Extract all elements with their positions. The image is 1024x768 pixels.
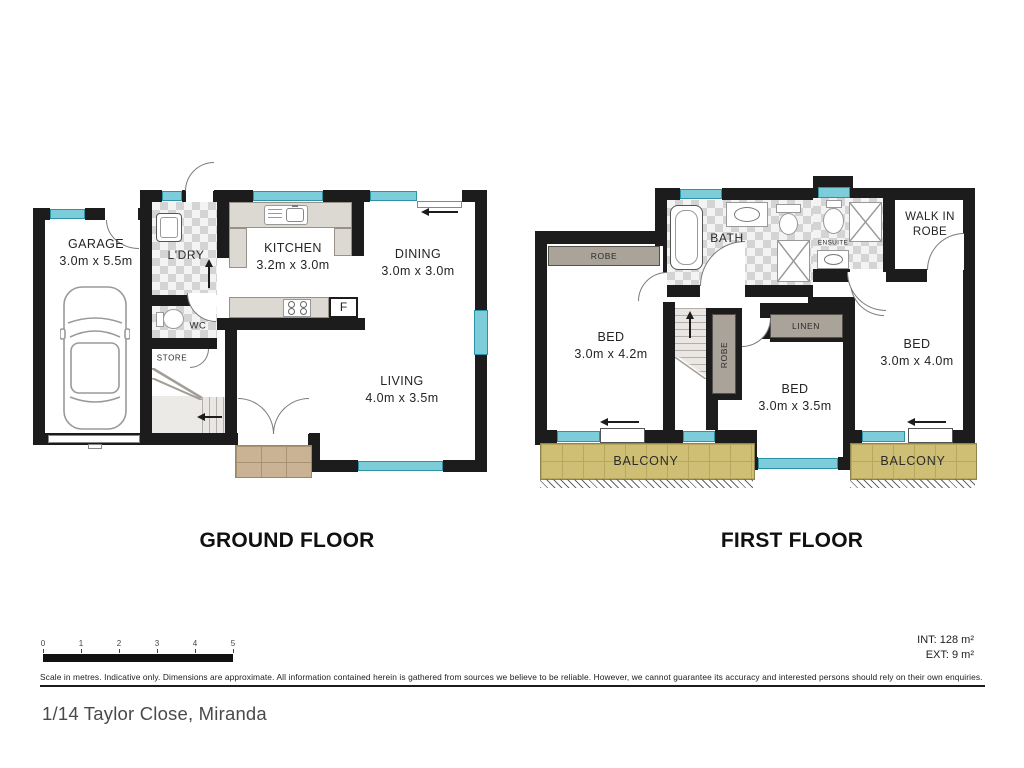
room-label-bed3: BED3.0m x 4.0m [880, 336, 953, 370]
scale-tick-label: 2 [117, 639, 121, 648]
stair-direction-line [204, 416, 222, 418]
room-label-bed1: BED3.0m x 4.2m [574, 329, 647, 363]
scale-tick-label: 3 [155, 639, 159, 648]
ensuite-basin-icon [817, 250, 849, 269]
label-linen: LINEN [792, 321, 820, 331]
room-label-walk-in-robe: WALK INROBE [905, 210, 955, 240]
store-door-arc [190, 349, 209, 368]
balcony-slider-door [600, 428, 645, 443]
slider-direction-line [914, 421, 946, 423]
window [253, 191, 323, 201]
ground-floor-title: GROUND FLOOR [199, 529, 374, 553]
label-balcony-left: BALCONY [613, 454, 678, 468]
stairs-up-arrow [686, 311, 694, 319]
divider-line [40, 685, 985, 687]
entry-direction-arrow [421, 208, 429, 216]
entry-direction-line [428, 211, 458, 213]
property-address: 1/14 Taylor Close, Miranda [42, 703, 267, 725]
bathtub-icon [670, 205, 703, 270]
bath-toilet-icon [776, 204, 801, 213]
scale-bar-rule [43, 654, 233, 662]
front-door-arc [185, 162, 214, 191]
room-label-bath: BATH [710, 231, 744, 245]
stairs-ground [202, 397, 225, 433]
porch-bricks [235, 445, 312, 478]
scale-tick-label: 1 [79, 639, 83, 648]
laundry-sink-icon [156, 213, 182, 242]
room-label-wc: WC [189, 321, 206, 332]
stairs-up-line [689, 318, 691, 338]
entry-step [417, 201, 462, 208]
scale-tick-label: 4 [193, 639, 197, 648]
bed1-door-arc [638, 272, 667, 301]
balcony-slider-door [908, 428, 953, 443]
bath-basin-counter [726, 202, 768, 227]
area-summary: INT: 128 m² EXT: 9 m² [917, 633, 974, 663]
first-floor-title: FIRST FLOOR [721, 529, 863, 553]
slider-direction-arrow [907, 418, 915, 426]
garage-door [48, 435, 140, 443]
slider-direction-arrow [600, 418, 608, 426]
room-label-kitchen: KITCHEN3.2m x 3.0m [256, 240, 329, 274]
window [358, 461, 443, 471]
scale-tick-label: 5 [231, 639, 235, 648]
label-robe-tall: ROBE [719, 342, 729, 369]
label-balcony-right: BALCONY [880, 454, 945, 468]
bath-toilet-bowl [779, 213, 798, 235]
window [683, 431, 715, 442]
ensuite-shower-icon [849, 202, 882, 242]
kitchen-sink-icon [264, 205, 308, 225]
window [557, 431, 600, 442]
window [162, 191, 182, 201]
window [370, 191, 417, 201]
external-area: EXT: 9 m² [917, 648, 974, 663]
wc-toilet-icon [163, 309, 184, 329]
french-door-right-arc [273, 398, 309, 434]
slider-direction-line [607, 421, 639, 423]
floorplan-page: F [0, 0, 1024, 768]
room-label-ensuite: ENSUITE [818, 240, 848, 247]
room-label-garage: GARAGE3.0m x 5.5m [59, 236, 132, 270]
kitchen-counter-right [334, 228, 352, 256]
stair-landing [152, 396, 202, 433]
garage-door-mark [88, 444, 102, 449]
window [680, 189, 722, 199]
scale-tick-label: 0 [41, 639, 45, 648]
french-door-left-arc [238, 398, 274, 434]
room-label-bed2: BED3.0m x 3.5m [758, 381, 831, 415]
window [818, 187, 850, 198]
hall-direction-line [208, 266, 210, 288]
stair-direction-arrow [197, 413, 205, 421]
stairs-cut [675, 357, 706, 379]
room-label-dining: DINING3.0m x 3.0m [381, 246, 454, 280]
balcony-right-hatch [850, 479, 975, 488]
understair-line [152, 378, 202, 400]
window [862, 431, 905, 442]
disclaimer-text: Scale in metres. Indicative only. Dimens… [40, 672, 983, 682]
ensuite-toilet-tank [826, 200, 842, 208]
car-icon [60, 283, 130, 433]
hall-direction-arrow [205, 259, 213, 267]
window [758, 458, 838, 469]
kitchen-counter-lower [229, 297, 329, 318]
stove-icon [283, 299, 311, 317]
label-robe-strip: ROBE [591, 251, 618, 261]
kitchen-counter-left [229, 228, 247, 268]
room-label-ldry: L'DRY [167, 248, 204, 262]
room-label-store: STORE [157, 354, 187, 363]
window [474, 310, 488, 355]
balcony-left-hatch [540, 479, 753, 488]
room-label-living: LIVING4.0m x 3.5m [365, 373, 438, 407]
fridge-label: F [331, 299, 356, 316]
fridge-box: F [329, 297, 358, 318]
internal-area: INT: 128 m² [917, 633, 974, 648]
window [50, 209, 85, 219]
ensuite-toilet-icon [823, 208, 844, 234]
bed2-door-arc [742, 318, 771, 347]
bath-shower-icon [777, 240, 810, 282]
